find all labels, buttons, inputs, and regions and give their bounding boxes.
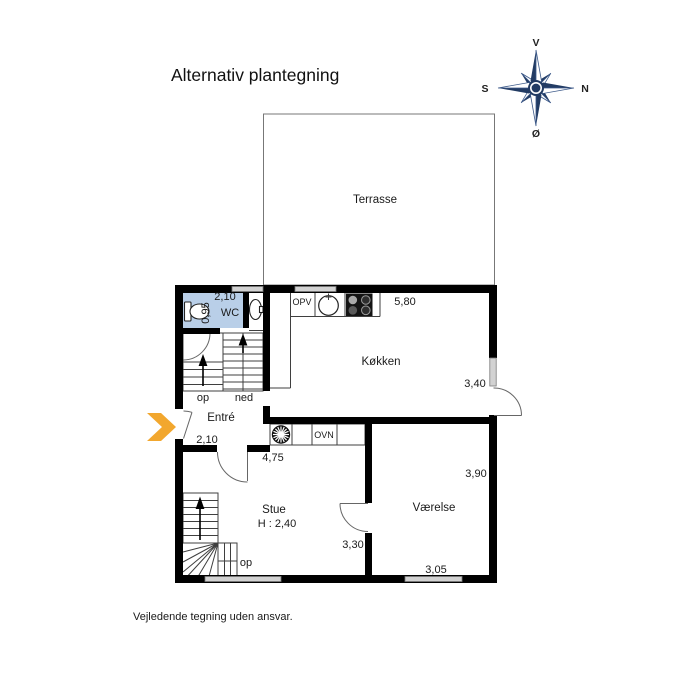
compass-west-label: V [532, 37, 539, 49]
doors [184, 388, 522, 532]
vaerelse-label: Værelse [413, 502, 456, 514]
wall-right-lower [489, 415, 497, 583]
stue-label: Stue [262, 504, 286, 516]
compass-rose: V S N Ø [481, 37, 588, 140]
entre-width-dim: 2,10 [196, 434, 217, 446]
stue-vaerelse-door-arc [340, 504, 368, 532]
compass-east-label: Ø [532, 128, 540, 140]
wc-width-dim: 2,10 [214, 291, 235, 303]
oven-label: OVN [314, 430, 334, 440]
entre-label: Entré [207, 412, 235, 424]
wall-right-upper [489, 285, 497, 358]
floorplan-canvas: Alternativ plantegning [0, 0, 700, 700]
wall-wc-divider [243, 293, 249, 328]
wc-label: WC [221, 307, 239, 319]
stue-depth-dim: 3,30 [342, 539, 363, 551]
room-terrasse: Terrasse [264, 114, 495, 285]
wall-left-upper [175, 285, 183, 409]
staircase-upper [183, 333, 263, 391]
stove-icon [346, 294, 373, 317]
wall-left-lower [175, 439, 183, 583]
stairs-lower-up-label: op [240, 557, 252, 569]
koekken-width-dim: 5,80 [394, 296, 415, 308]
terrasse-label: Terrasse [353, 194, 397, 206]
stue-ceiling-height: H : 2,40 [258, 518, 297, 530]
disclaimer-text: Vejledende tegning uden ansvar. [133, 611, 293, 623]
window [232, 287, 263, 292]
windows [205, 287, 496, 582]
window [490, 358, 496, 386]
sink-icon [319, 294, 339, 316]
wall-hall-kitchen [263, 293, 270, 391]
washbasin-icon [249, 300, 263, 331]
compass-north-label: N [581, 83, 589, 95]
window [405, 577, 462, 582]
wall-stue-vaerelse-lower [365, 533, 372, 583]
stairs-up-label: op [197, 392, 209, 404]
staircase-lower [183, 493, 237, 580]
stairs-down-label: ned [235, 392, 253, 404]
plan-labels: 2,10 0,95 WC OPV 5,80 Køkken 3,40 op ned… [196, 291, 486, 576]
wc-depth-dim: 0,95 [200, 302, 212, 323]
stairs-down-arrow [239, 334, 248, 354]
kitchen-counter [270, 293, 380, 388]
walls [175, 285, 497, 583]
wall-entre-south-right [247, 445, 270, 452]
entre-stue-door-arc [218, 452, 248, 482]
dishwasher-label: OPV [292, 297, 311, 307]
wall-stue-vaerelse-upper [365, 417, 372, 503]
wall-wc-south [183, 328, 220, 334]
koekken-label: Køkken [362, 356, 401, 368]
page-title: Alternativ plantegning [171, 65, 339, 85]
koekken-depth-dim: 3,40 [464, 378, 485, 390]
stairs-lower-up-arrow [196, 497, 205, 541]
compass-south-label: S [481, 83, 488, 95]
front-door-arc [184, 411, 193, 439]
floorplan-page: Alternativ plantegning [0, 0, 700, 700]
kitchen-exit-door-arc [494, 388, 522, 416]
vaerelse-width-dim: 3,05 [425, 564, 446, 576]
window [295, 287, 336, 292]
entrance-arrow-icon [147, 413, 176, 441]
window [205, 577, 281, 582]
vaerelse-depth-dim: 3,90 [465, 468, 486, 480]
extractor-fan-icon [272, 425, 290, 443]
wall-entre-south-left [183, 445, 217, 452]
wc-door-arc [184, 333, 211, 360]
stue-width-dim: 4,75 [262, 452, 283, 464]
wall-kitchen-south [263, 417, 497, 424]
